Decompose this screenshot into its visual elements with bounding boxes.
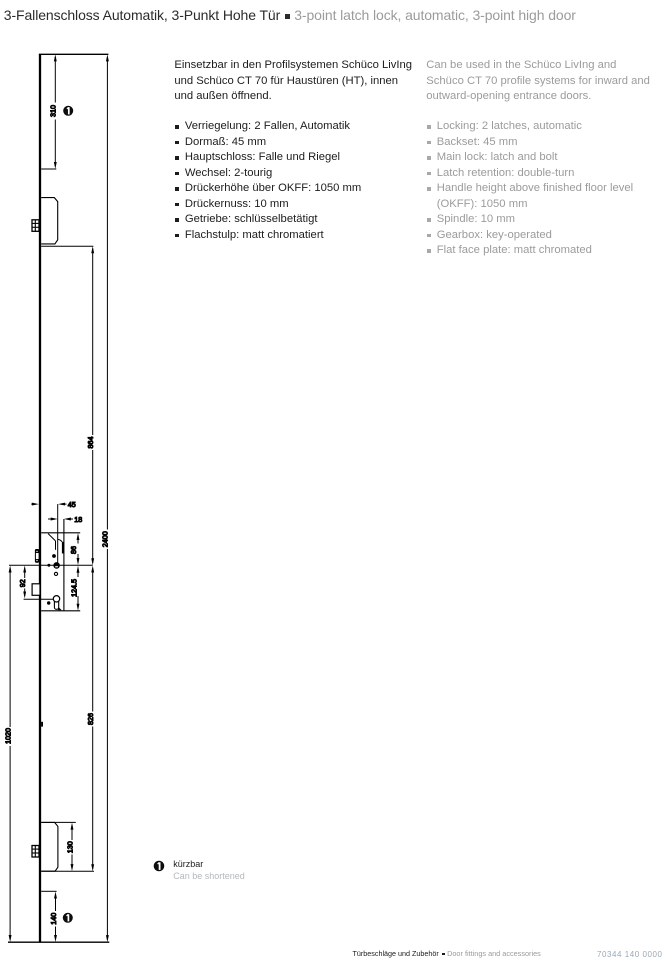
svg-text:826: 826 (86, 713, 95, 725)
svg-text:1020: 1020 (3, 728, 12, 744)
svg-text:130: 130 (65, 841, 74, 853)
svg-text:2400: 2400 (101, 531, 110, 547)
svg-text:18: 18 (74, 515, 82, 524)
svg-text:864: 864 (86, 437, 95, 449)
svg-text:86: 86 (69, 546, 78, 554)
svg-text:140: 140 (49, 913, 58, 925)
svg-text:310: 310 (49, 105, 58, 117)
svg-text:92: 92 (18, 579, 27, 587)
svg-text:45: 45 (68, 500, 76, 509)
svg-text:124.5: 124.5 (69, 579, 78, 597)
